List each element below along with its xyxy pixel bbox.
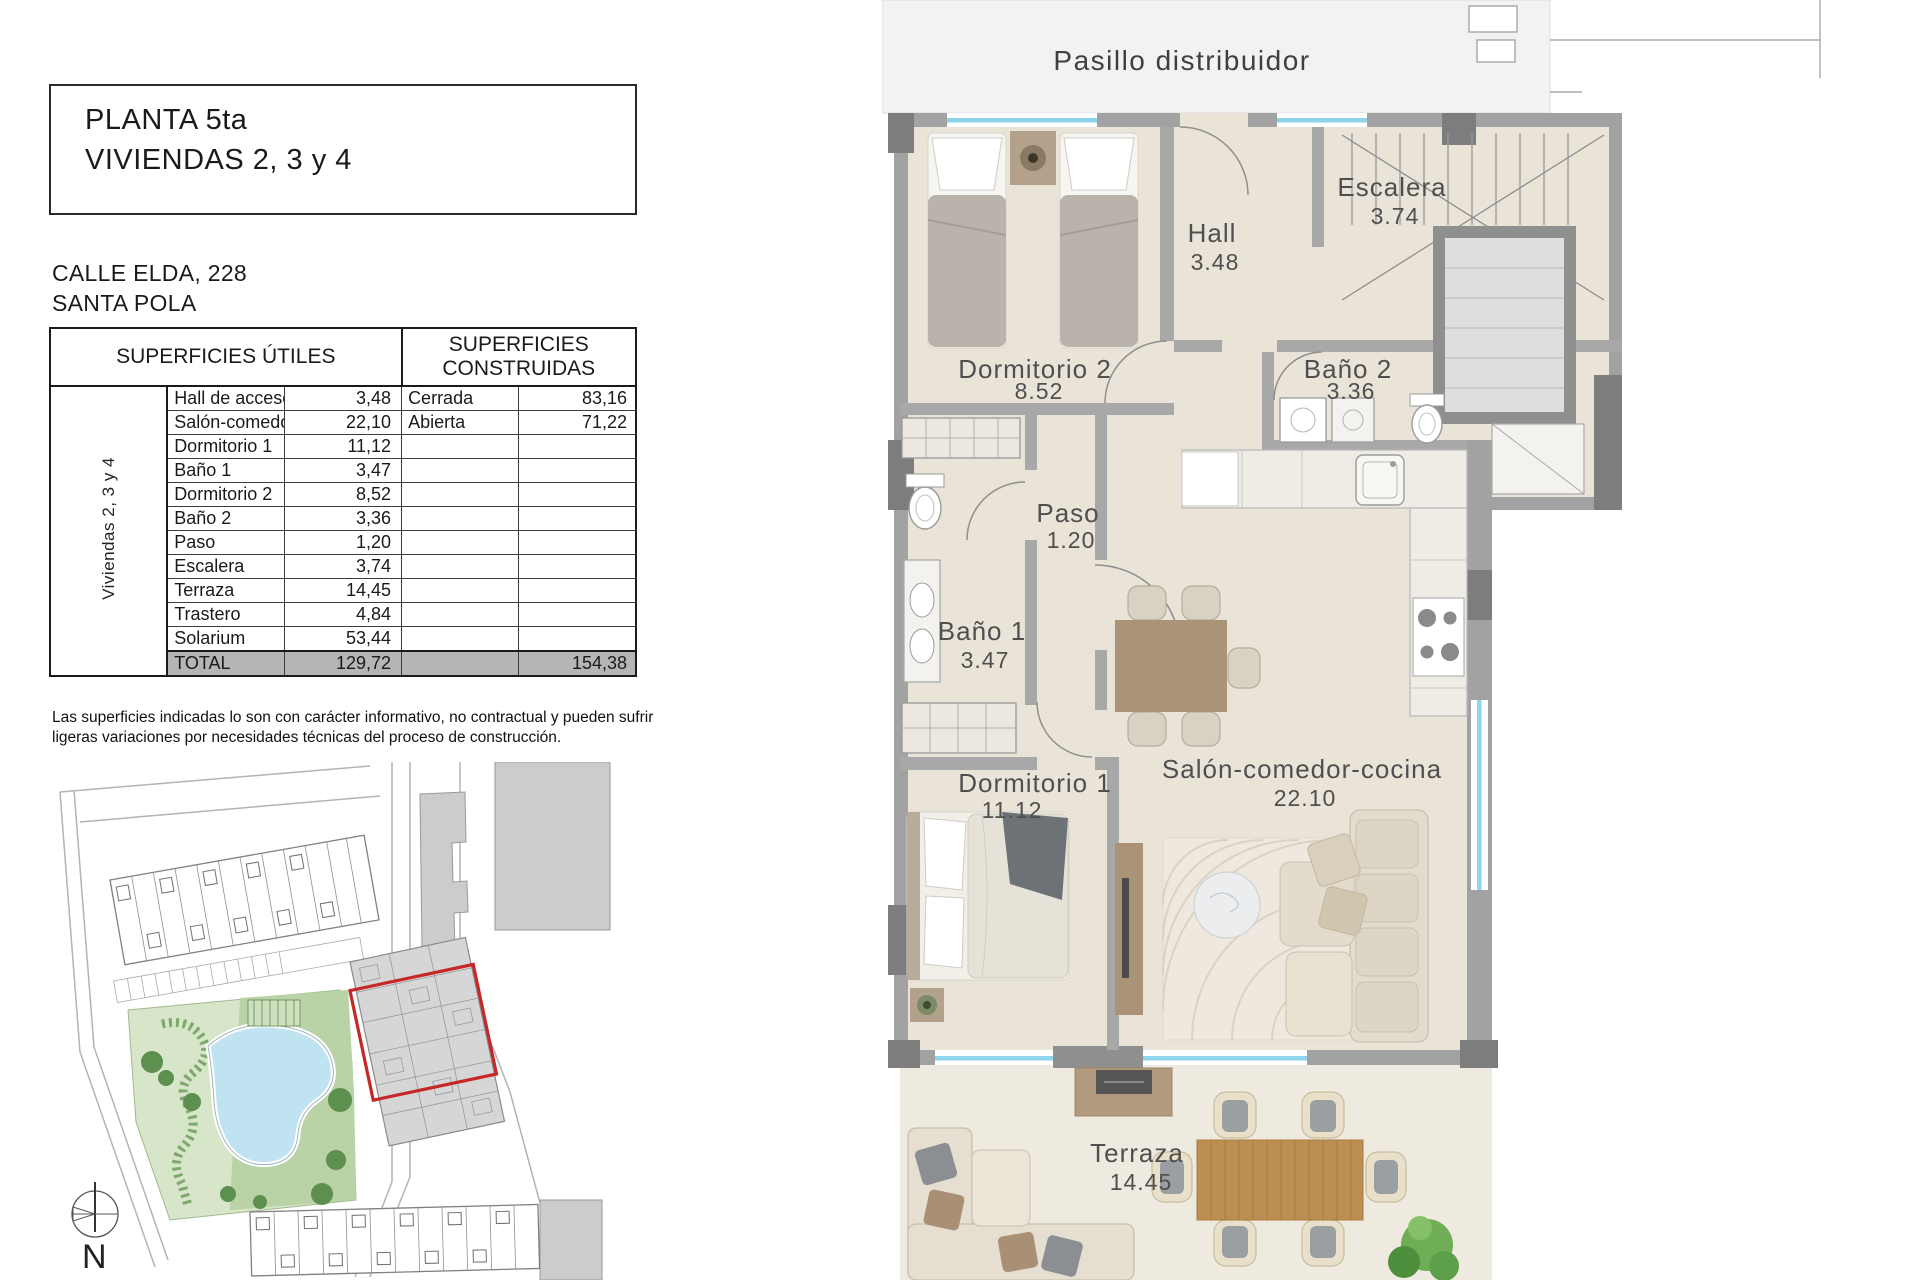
room-area-salon: 22.10 (1274, 785, 1337, 811)
site-townhouse-row-bottom (250, 1204, 540, 1276)
room-label-pasillo: Pasillo distribuidor (1053, 45, 1310, 76)
address-line1: CALLE ELDA, 228 (52, 258, 247, 288)
room-label-salon: Salón-comedor-cocina (1162, 754, 1442, 784)
bathroom1-fixtures (904, 474, 944, 682)
tv-console-icon (1115, 843, 1143, 1015)
room-label-hall: Hall (1188, 218, 1237, 248)
plan-title-line1: PLANTA 5ta (85, 100, 635, 140)
room-area-hall: 3.48 (1191, 249, 1240, 275)
site-garden (128, 990, 356, 1220)
address-block: CALLE ELDA, 228 SANTA POLA (52, 258, 247, 318)
room-area-terraza: 14.45 (1110, 1169, 1173, 1195)
sink-icon (1280, 398, 1326, 442)
coffee-table-icon (1194, 872, 1260, 938)
sink-icon (904, 560, 940, 682)
room-area-dormitorio1: 11.12 (982, 797, 1043, 823)
closet-icon (902, 703, 1016, 753)
fridge-icon (1182, 452, 1238, 506)
north-label: N (82, 1238, 107, 1276)
room-label-dormitorio1: Dormitorio 1 (958, 768, 1112, 798)
living-area (1163, 810, 1428, 1042)
header-superficies-construidas: SUPERFICIES CONSTRUIDAS (402, 328, 636, 386)
bed-icon (928, 133, 1006, 348)
address-line2: SANTA POLA (52, 288, 247, 318)
terrace-console-icon (1075, 1068, 1172, 1116)
bed-icon (907, 812, 1069, 980)
table-header-row: SUPERFICIES ÚTILES SUPERFICIES CONSTRUID… (50, 328, 636, 386)
plan-title-line2: VIVIENDAS 2, 3 y 4 (85, 140, 635, 180)
dining-table-icon (1115, 620, 1227, 712)
site-building-highlighted (344, 937, 506, 1147)
kitchen-sink-icon (1356, 455, 1404, 505)
site-plan: N (40, 762, 640, 1280)
north-compass-icon (72, 1182, 118, 1237)
toilet-icon (906, 474, 944, 529)
washer-icon (1332, 398, 1374, 442)
floor-plan: Pasillo distribuidor (882, 0, 1920, 1280)
room-label-paso: Paso (1036, 498, 1099, 528)
room-area-bano2: 3.36 (1327, 378, 1376, 404)
room-area-bano1: 3.47 (961, 647, 1010, 673)
site-townhouse-row-top (96, 835, 385, 1002)
room-area-paso: 1.20 (1047, 527, 1096, 553)
terrace-table-icon (1197, 1140, 1363, 1220)
room-label-terraza: Terraza (1090, 1138, 1184, 1168)
closet-icon (902, 418, 1020, 458)
title-box: PLANTA 5ta VIVIENDAS 2, 3 y 4 (49, 84, 637, 215)
window-right (1471, 700, 1488, 890)
pergola (248, 1000, 300, 1026)
stove-icon (1413, 598, 1464, 676)
room-area-dormitorio2: 8.52 (1015, 378, 1064, 404)
group-label-vertical: Viviendas 2, 3 y 4 (50, 386, 167, 676)
table-row: Viviendas 2, 3 y 4 Hall de acceso 3,48 C… (50, 386, 636, 411)
room-label-bano1: Baño 1 (938, 616, 1026, 646)
disclaimer: Las superficies indicadas lo son con car… (52, 708, 662, 748)
toilet-icon (1410, 394, 1444, 443)
room-label-escalera: Escalera (1337, 172, 1446, 202)
header-superficies-utiles: SUPERFICIES ÚTILES (50, 328, 402, 386)
room-area-escalera: 3.74 (1371, 203, 1420, 229)
bed-icon (1060, 133, 1138, 348)
surfaces-table: SUPERFICIES ÚTILES SUPERFICIES CONSTRUID… (49, 327, 637, 677)
entry-door-opening (1180, 113, 1248, 127)
